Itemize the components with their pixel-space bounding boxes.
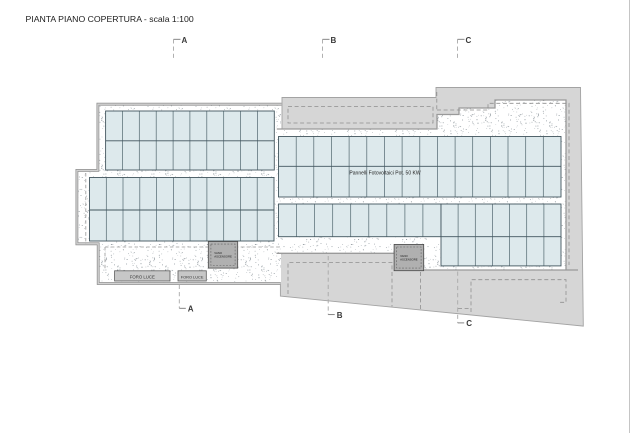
svg-text:FORO LUCE: FORO LUCE — [130, 275, 155, 280]
svg-text:C: C — [466, 319, 472, 328]
svg-text:ASCENSORE: ASCENSORE — [214, 255, 232, 259]
svg-text:B: B — [337, 311, 343, 320]
svg-text:Pannelli Fotovoltaici Pot. 50: Pannelli Fotovoltaici Pot. 50 KW — [349, 171, 420, 177]
svg-text:A: A — [188, 305, 194, 314]
svg-text:B: B — [331, 36, 337, 45]
svg-text:FORO LUCE: FORO LUCE — [181, 275, 204, 280]
svg-text:C: C — [466, 36, 472, 45]
svg-text:ASCENSORE: ASCENSORE — [400, 257, 418, 261]
svg-text:A: A — [182, 36, 188, 45]
svg-text:PIANTA PIANO COPERTURA - scala: PIANTA PIANO COPERTURA - scala 1:100 — [26, 14, 194, 24]
